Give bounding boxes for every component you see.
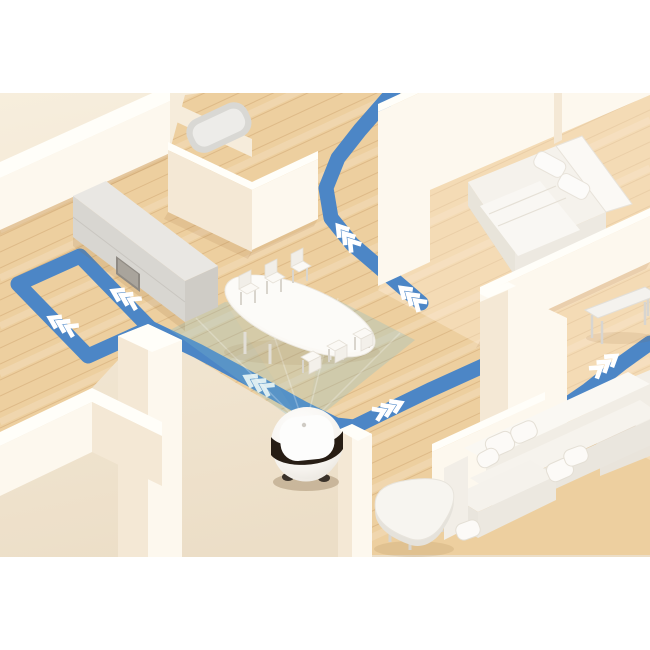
illustration-stage bbox=[0, 0, 650, 650]
frame-mask-bottom bbox=[0, 557, 650, 650]
wall-bedroom-left bbox=[378, 80, 430, 286]
robot bbox=[271, 407, 343, 491]
floor-plan-illustration bbox=[0, 0, 650, 650]
coffee-table bbox=[374, 479, 454, 557]
frame-mask-top bbox=[0, 0, 650, 93]
wall-bottom-center bbox=[338, 424, 372, 557]
